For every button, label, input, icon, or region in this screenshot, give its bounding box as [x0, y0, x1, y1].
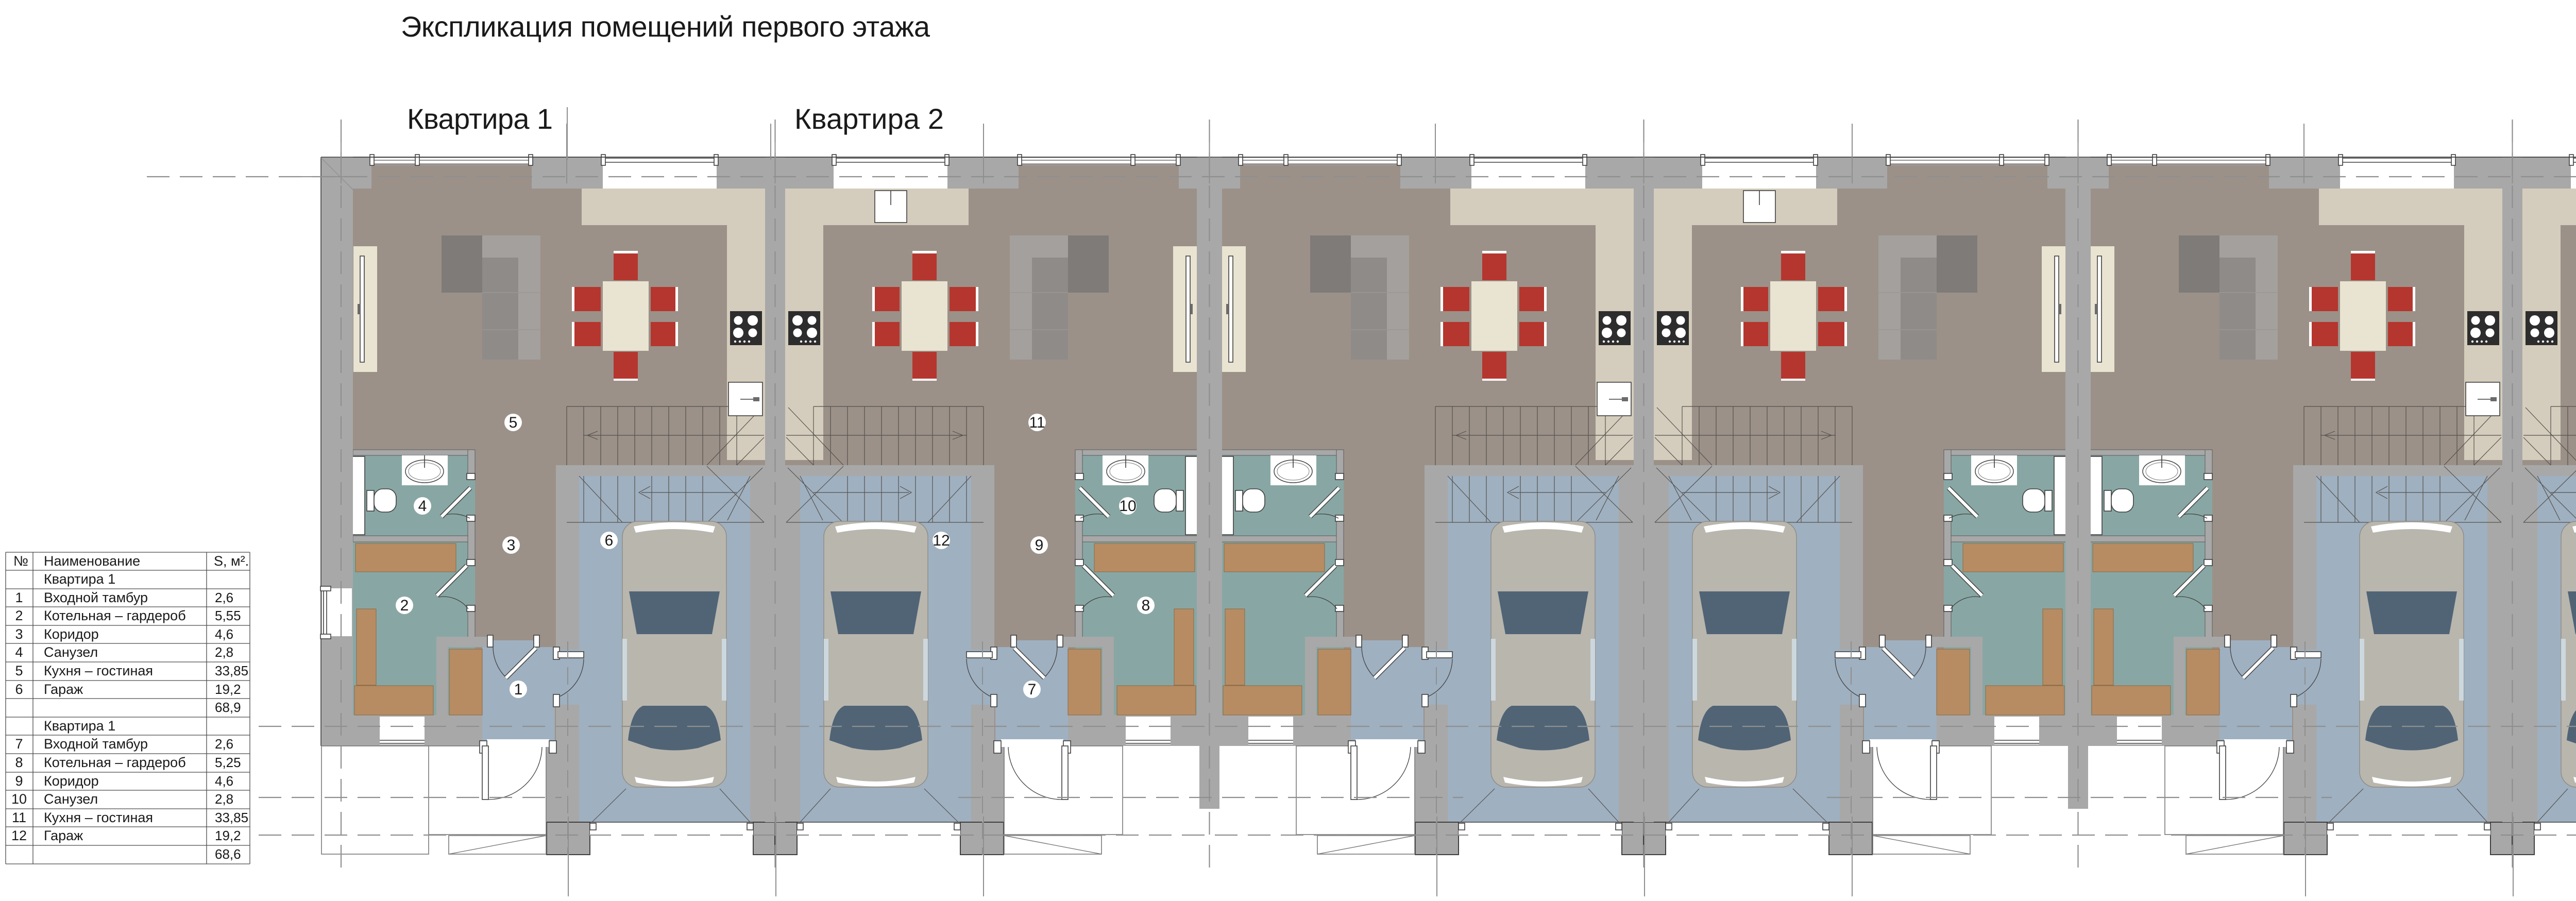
svg-text:68,6: 68,6 [215, 846, 241, 862]
svg-text:Входной тамбур: Входной тамбур [44, 590, 148, 605]
svg-text:Наименование: Наименование [44, 553, 140, 569]
svg-text:12: 12 [11, 828, 27, 843]
svg-text:Котельная – гардероб: Котельная – гардероб [44, 755, 186, 770]
svg-text:Квартира 1: Квартира 1 [44, 571, 115, 587]
svg-text:2: 2 [15, 608, 23, 623]
svg-text:4,6: 4,6 [215, 626, 233, 642]
svg-text:Квартира 2: Квартира 2 [794, 103, 944, 135]
svg-text:2,6: 2,6 [215, 590, 233, 605]
svg-text:19,2: 19,2 [215, 682, 241, 697]
svg-text:4,6: 4,6 [215, 773, 233, 789]
svg-text:Гараж: Гараж [44, 682, 83, 697]
svg-text:68,9: 68,9 [215, 700, 241, 715]
svg-text:8: 8 [15, 755, 23, 770]
svg-text:7: 7 [1028, 681, 1037, 698]
svg-text:Санузел: Санузел [44, 644, 98, 660]
svg-text:2,8: 2,8 [215, 791, 233, 807]
svg-text:Санузел: Санузел [44, 791, 98, 807]
svg-text:12: 12 [933, 532, 950, 549]
svg-text:5,55: 5,55 [215, 608, 241, 623]
svg-text:8: 8 [1142, 597, 1150, 614]
svg-text:Котельная – гардероб: Котельная – гардероб [44, 608, 186, 623]
svg-text:Квартира 1: Квартира 1 [44, 718, 115, 734]
svg-text:6: 6 [15, 682, 23, 697]
svg-text:№: № [13, 553, 28, 569]
svg-text:4: 4 [15, 644, 23, 660]
svg-text:Коридор: Коридор [44, 626, 99, 642]
svg-text:5: 5 [15, 663, 23, 678]
svg-text:19,2: 19,2 [215, 828, 241, 843]
svg-text:2,8: 2,8 [215, 644, 233, 660]
svg-text:5: 5 [509, 414, 518, 431]
svg-text:11: 11 [1029, 414, 1045, 431]
svg-text:9: 9 [15, 773, 23, 789]
svg-text:7: 7 [15, 736, 23, 752]
svg-text:33,85: 33,85 [215, 810, 248, 825]
svg-text:10: 10 [11, 791, 27, 807]
svg-text:Гараж: Гараж [44, 828, 83, 843]
svg-text:5,25: 5,25 [215, 755, 241, 770]
svg-text:6: 6 [605, 532, 614, 549]
svg-text:Кухня – гостиная: Кухня – гостиная [44, 663, 153, 678]
svg-text:9: 9 [1035, 537, 1044, 554]
svg-text:2,6: 2,6 [215, 736, 233, 752]
svg-text:4: 4 [418, 498, 427, 515]
svg-text:S, м².: S, м². [214, 553, 249, 569]
svg-text:3: 3 [507, 537, 516, 554]
svg-text:1: 1 [514, 681, 523, 698]
svg-text:3: 3 [15, 626, 23, 642]
svg-text:1: 1 [15, 590, 23, 605]
svg-text:10: 10 [1119, 498, 1136, 515]
svg-text:Входной тамбур: Входной тамбур [44, 736, 148, 752]
svg-text:Коридор: Коридор [44, 773, 99, 789]
svg-text:Экспликация помещений первого: Экспликация помещений первого этажа [401, 10, 930, 43]
svg-text:2: 2 [400, 597, 409, 614]
svg-text:11: 11 [12, 810, 26, 825]
svg-text:33,85: 33,85 [215, 663, 248, 678]
svg-text:Квартира 1: Квартира 1 [407, 103, 553, 135]
svg-text:Кухня – гостиная: Кухня – гостиная [44, 810, 153, 825]
